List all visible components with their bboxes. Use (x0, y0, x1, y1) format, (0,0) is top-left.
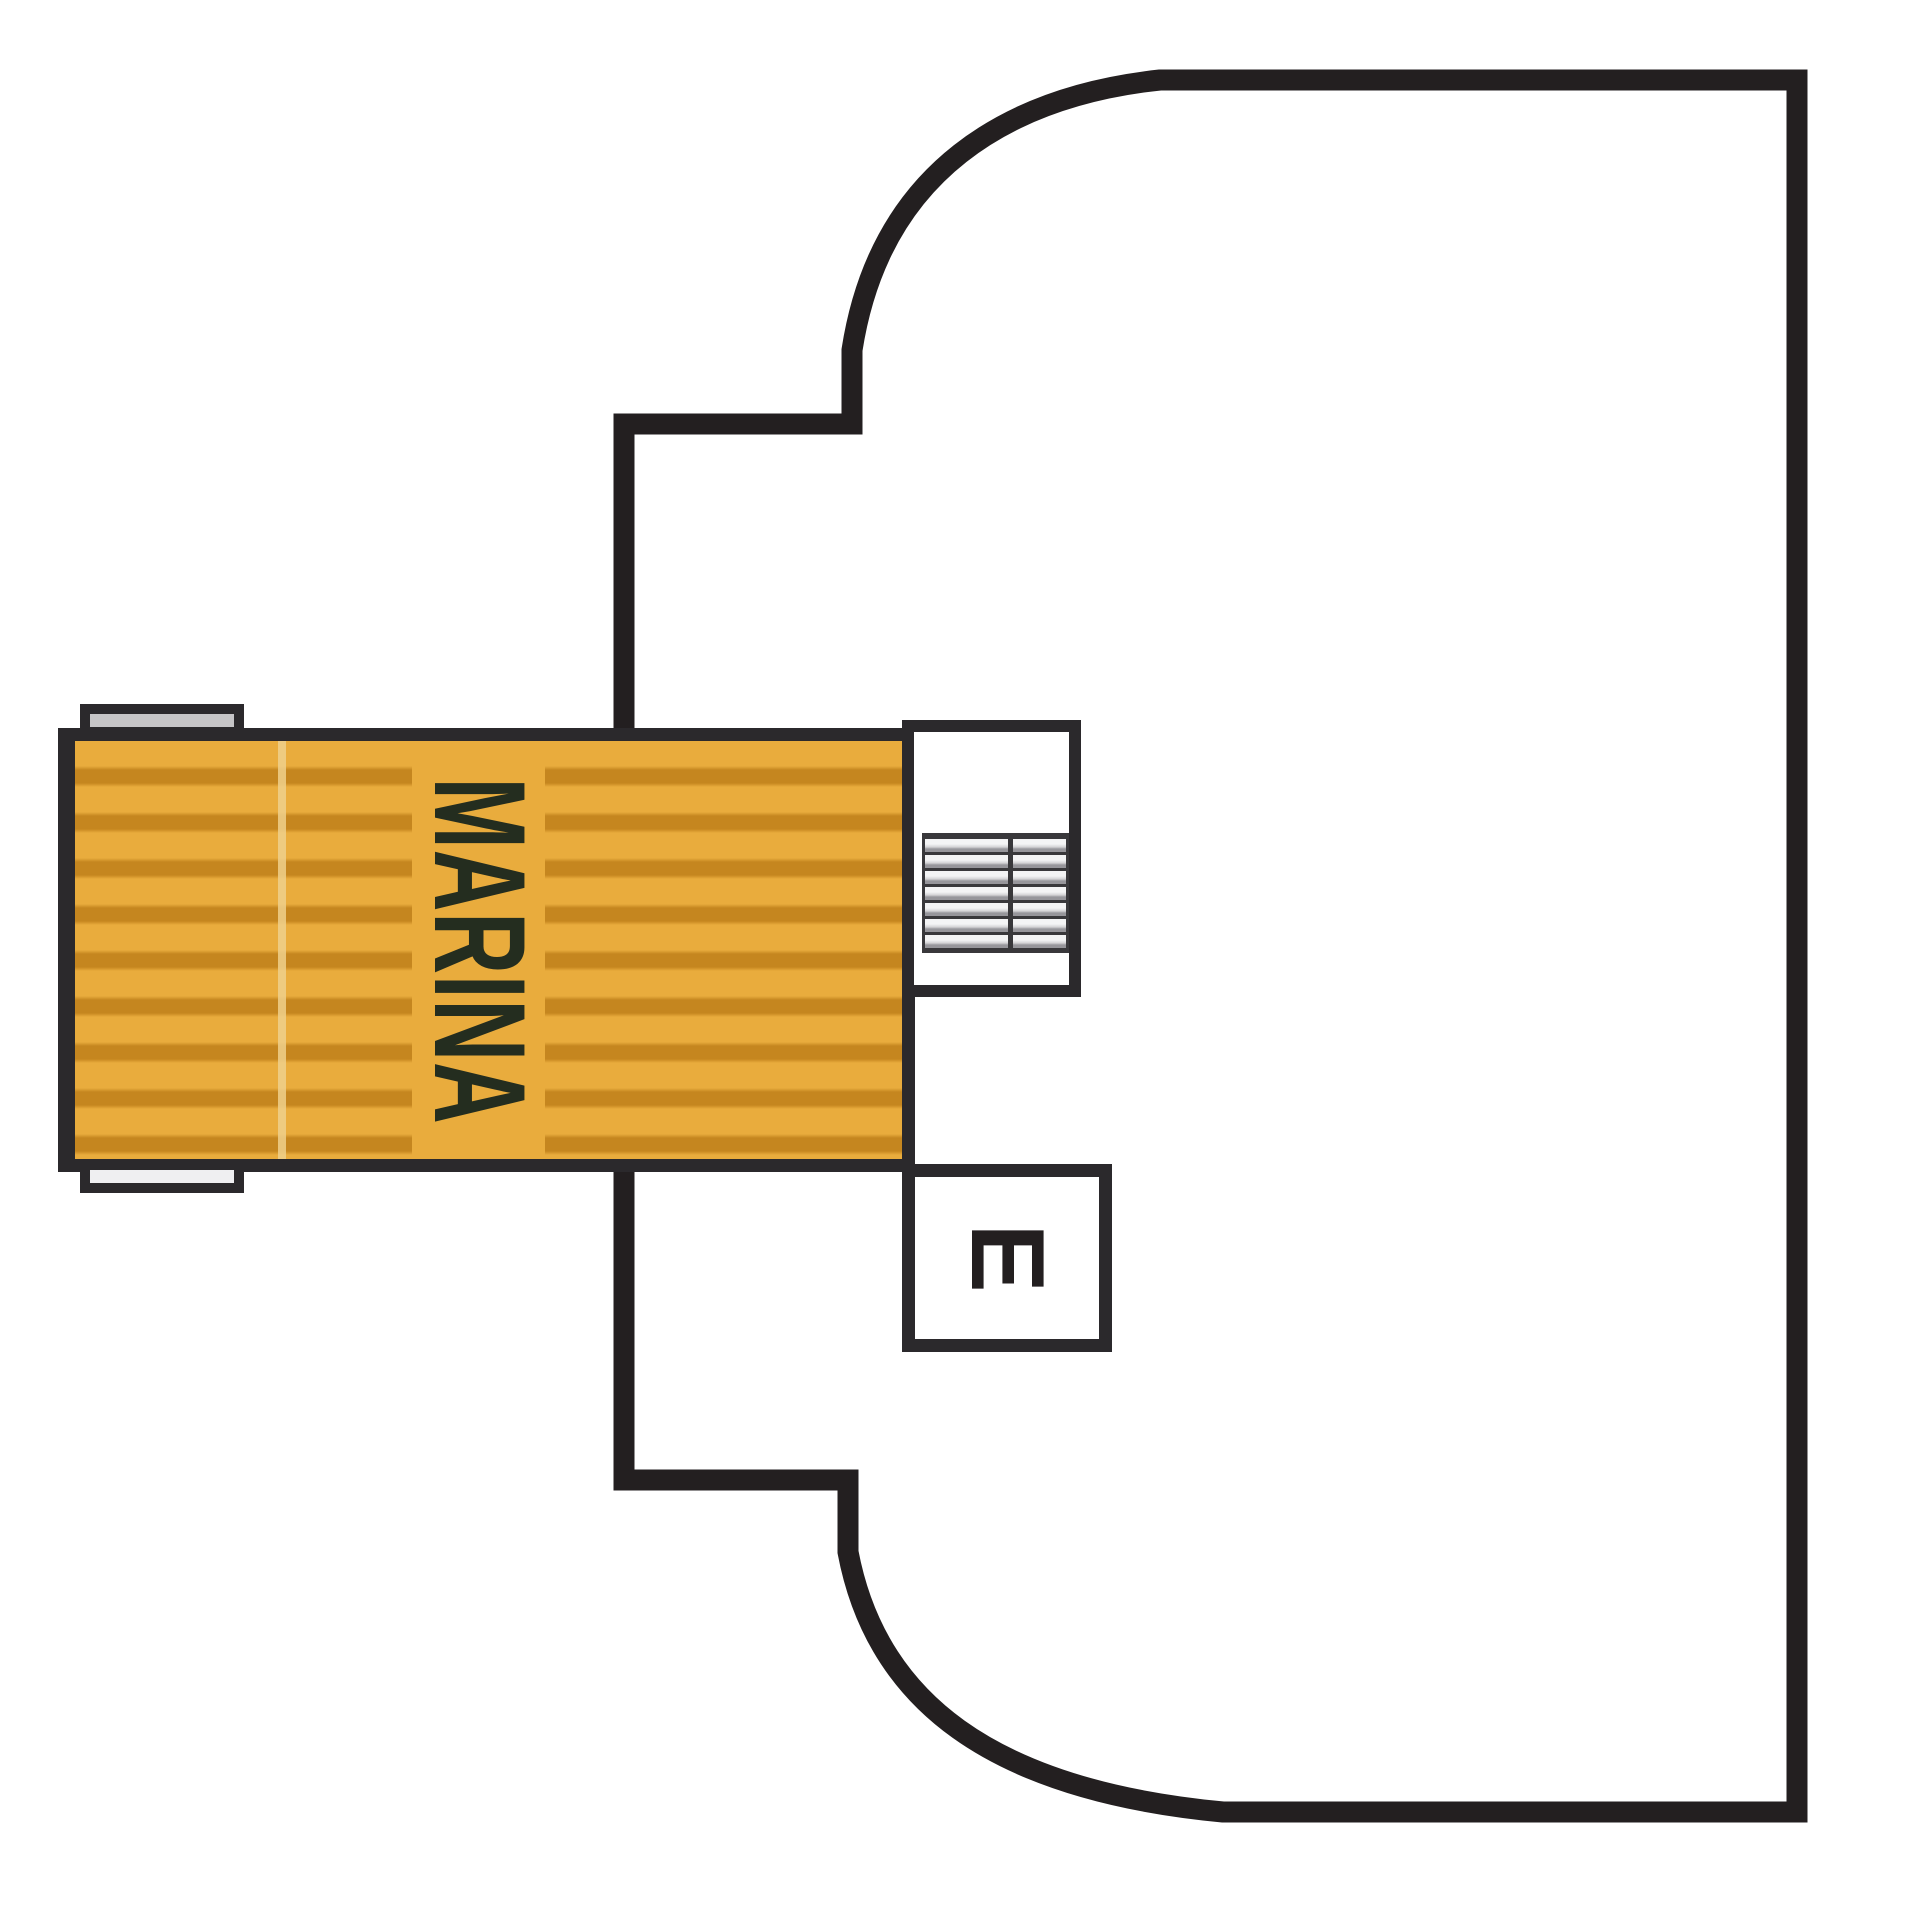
deck-plan: E MARINA (0, 0, 1920, 1913)
deck-name-label: MARINA (415, 777, 545, 1124)
platform-edge-cap-bottom (80, 1160, 244, 1193)
stairs-divider (1008, 836, 1013, 950)
elevator-label: E (955, 1223, 1059, 1292)
stairs-icon (922, 833, 1069, 953)
platform-edge-cap-top (80, 704, 244, 737)
deck-seam-line (278, 741, 286, 1159)
